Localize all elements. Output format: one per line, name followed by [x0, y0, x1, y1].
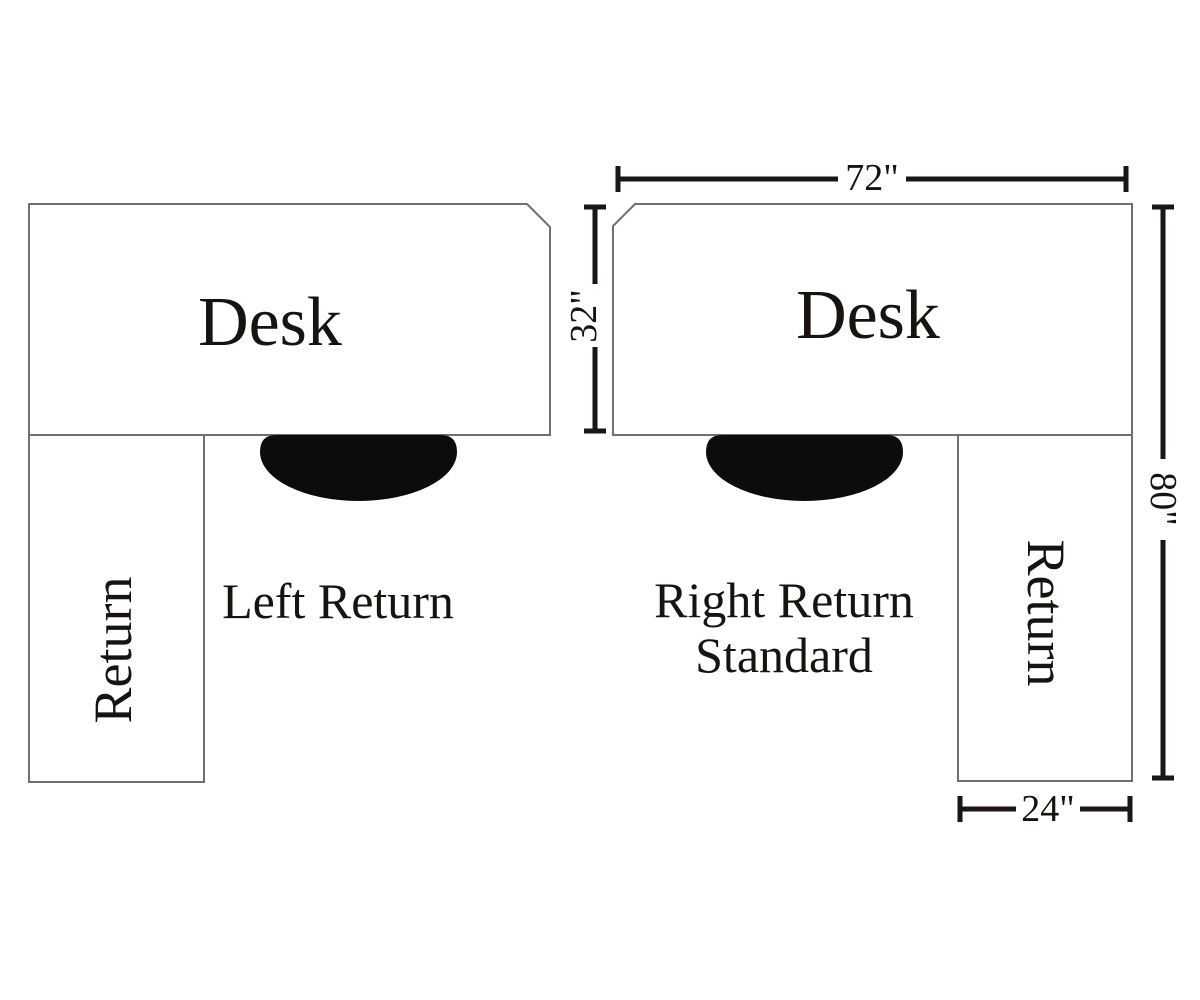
- right-desk-label: Desk: [796, 281, 940, 351]
- return-width-dimension-label: 24": [1021, 790, 1075, 828]
- left-desk-label: Desk: [198, 288, 342, 358]
- desk-width-dimension-label: 72": [845, 159, 899, 197]
- left-unit-caption: Left Return: [222, 576, 454, 626]
- right-unit-caption: Right Return Standard: [654, 573, 914, 683]
- desk-depth-dimension-label: 32": [565, 289, 603, 343]
- diagram-linework: [0, 0, 1200, 1000]
- chair-silhouette-right: [706, 435, 903, 501]
- overall-depth-dimension-label: 80": [1144, 472, 1182, 526]
- chair-silhouette-left: [260, 435, 457, 501]
- right-unit-caption-line2: Standard: [654, 628, 914, 683]
- right-unit-caption-line1: Right Return: [654, 573, 914, 628]
- desk-configuration-diagram: Desk Desk Return Return Left Return Righ…: [0, 0, 1200, 1000]
- left-return-label: Return: [86, 577, 140, 724]
- right-return-label: Return: [1019, 540, 1073, 687]
